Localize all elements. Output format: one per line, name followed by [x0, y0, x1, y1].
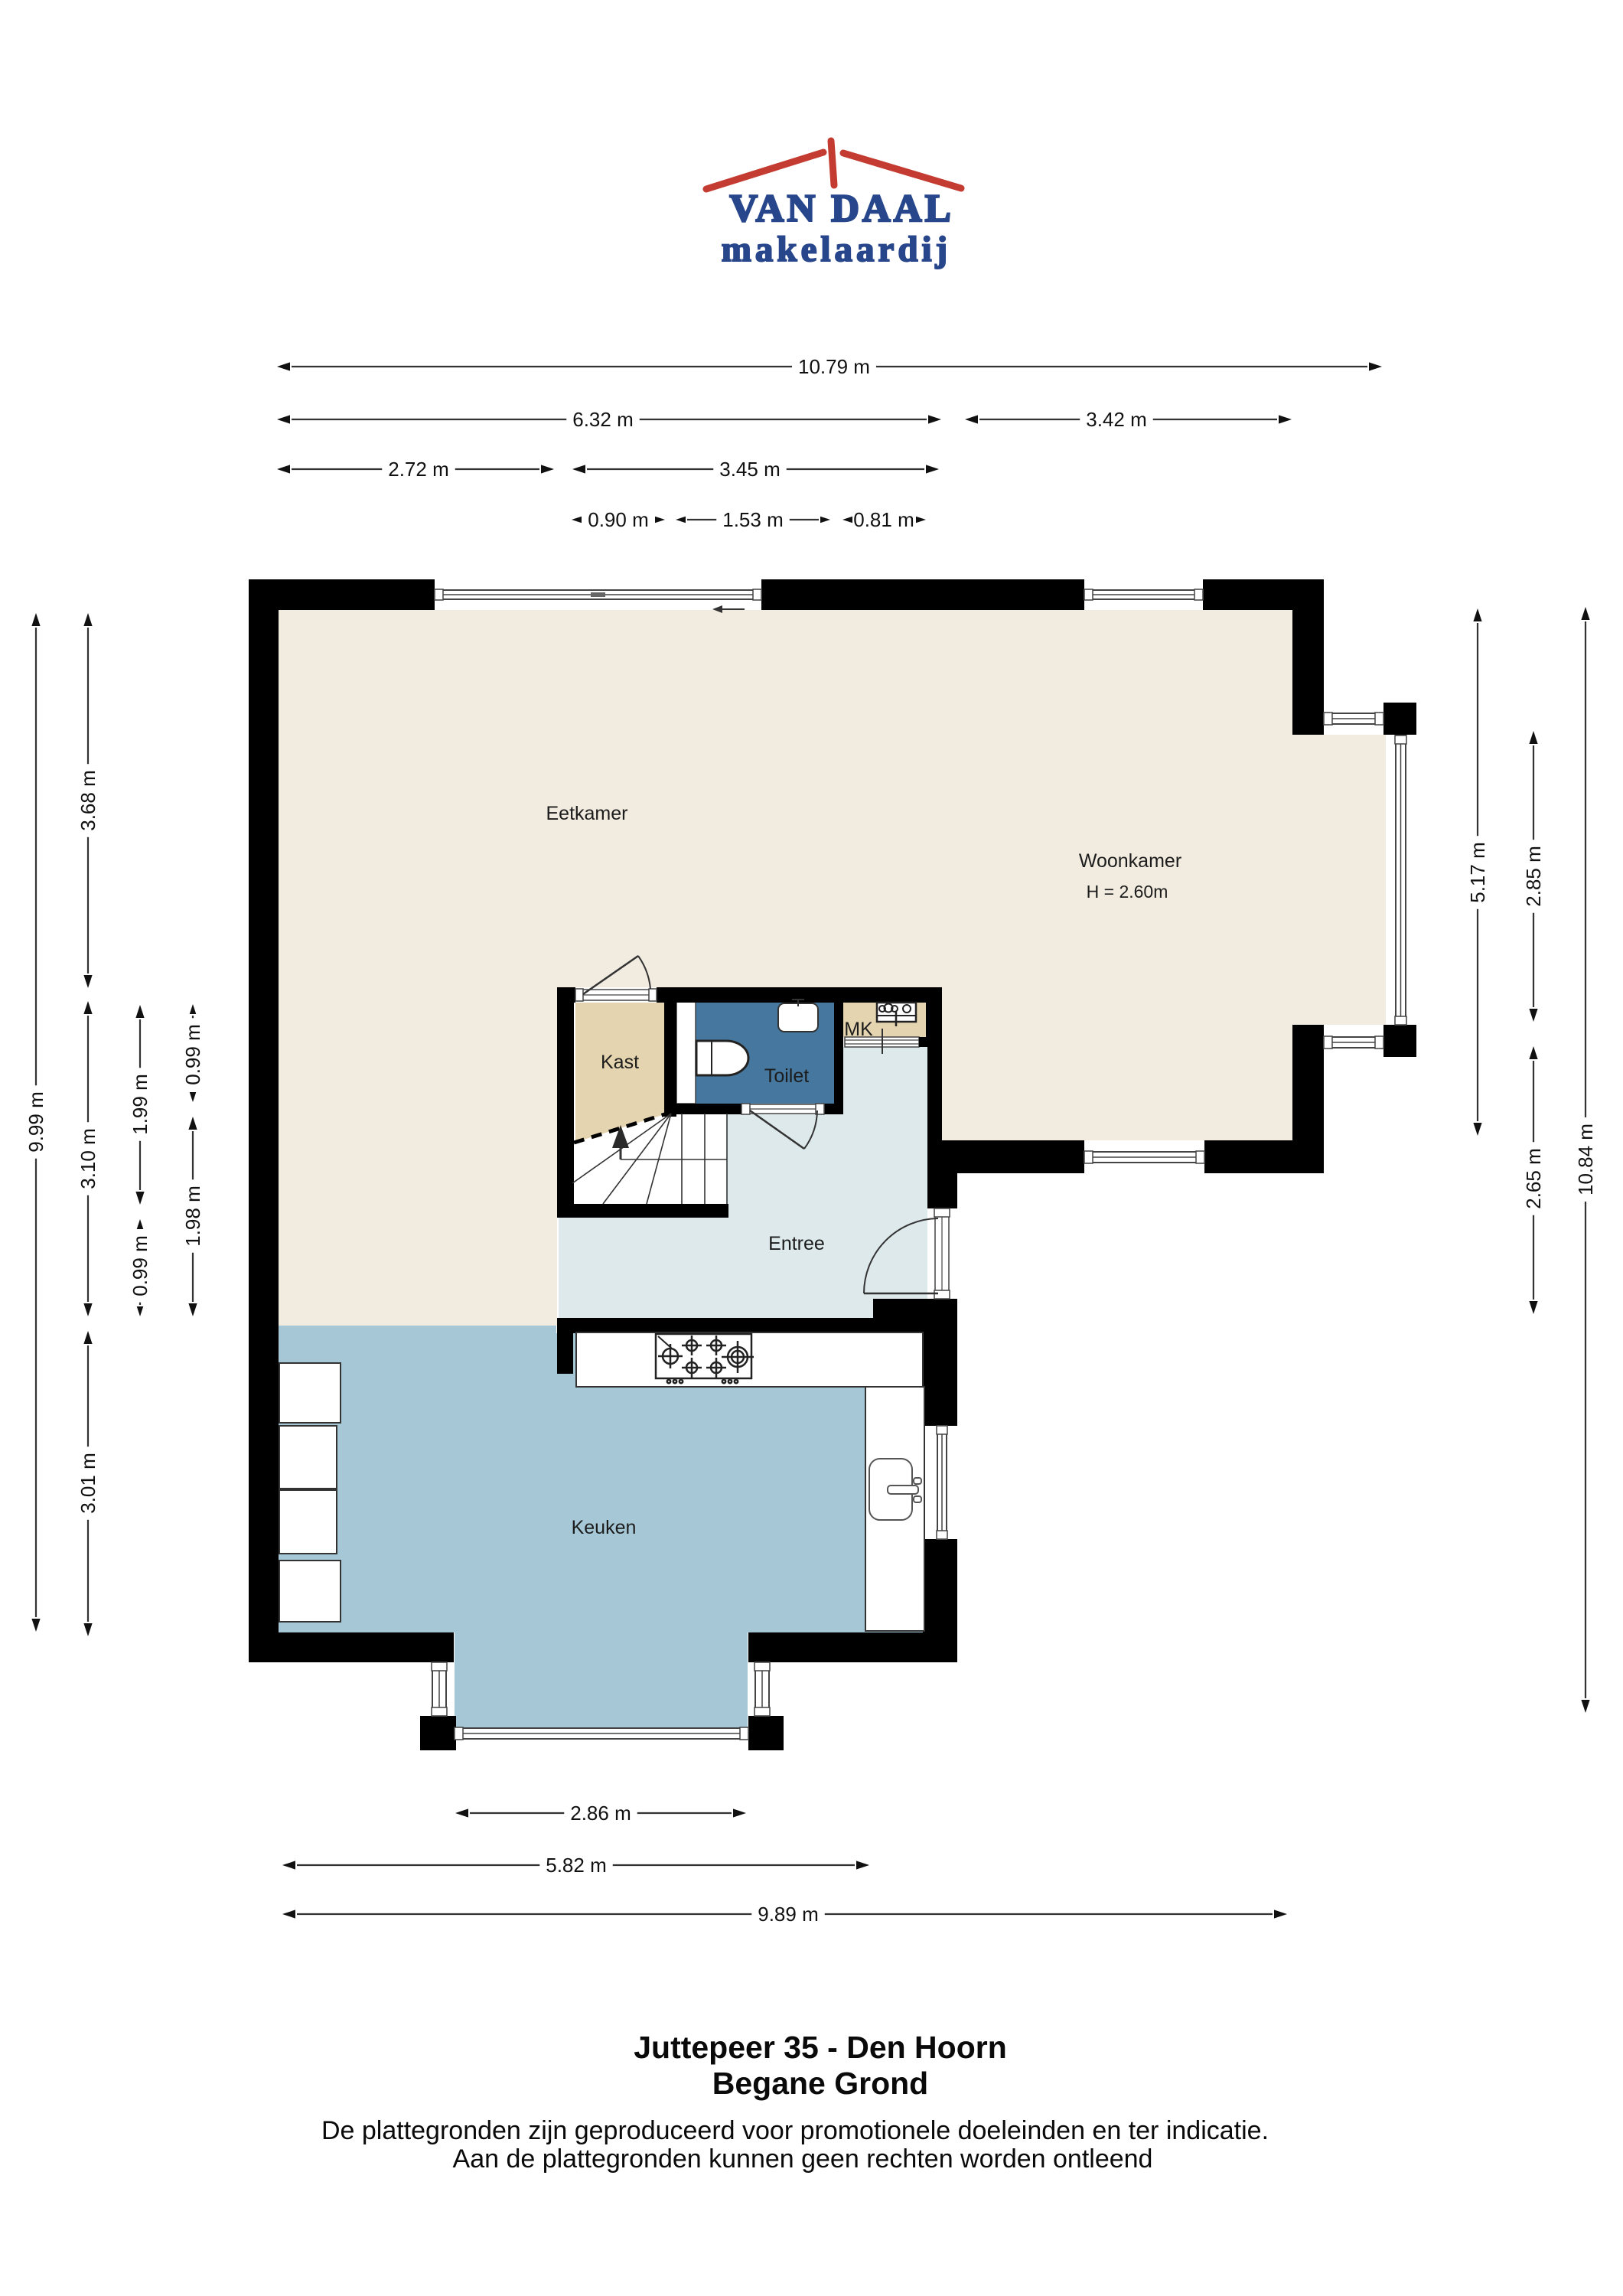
svg-text:Aan de plattegronden kunnen ge: Aan de plattegronden kunnen geen rechten… [453, 2144, 1153, 2174]
svg-text:9.99 m: 9.99 m [24, 1091, 47, 1153]
svg-text:1.53 m: 1.53 m [722, 508, 784, 531]
svg-text:VAN DAAL: VAN DAAL [729, 188, 953, 230]
svg-text:3.45 m: 3.45 m [719, 458, 781, 481]
svg-text:0.90 m: 0.90 m [588, 508, 649, 531]
svg-text:2.72 m: 2.72 m [388, 458, 449, 481]
svg-text:H = 2.60m: H = 2.60m [1087, 882, 1168, 902]
svg-text:3.10 m: 3.10 m [77, 1128, 99, 1189]
svg-text:6.32 m: 6.32 m [572, 408, 634, 431]
svg-text:5.82 m: 5.82 m [546, 1854, 607, 1877]
svg-text:Kast: Kast [601, 1052, 639, 1073]
svg-text:5.17 m: 5.17 m [1466, 842, 1489, 903]
svg-text:1.99 m: 1.99 m [129, 1074, 152, 1135]
svg-text:10.79 m: 10.79 m [798, 355, 870, 378]
svg-text:2.65 m: 2.65 m [1522, 1148, 1545, 1209]
svg-text:2.85 m: 2.85 m [1522, 846, 1545, 907]
svg-text:3.42 m: 3.42 m [1086, 408, 1147, 431]
svg-text:1.98 m: 1.98 m [181, 1186, 204, 1247]
svg-text:10.84 m: 10.84 m [1574, 1124, 1597, 1195]
svg-text:makelaardij: makelaardij [722, 230, 951, 269]
svg-text:0.99 m: 0.99 m [129, 1235, 152, 1296]
svg-text:3.01 m: 3.01 m [77, 1453, 99, 1514]
svg-text:Toilet: Toilet [764, 1065, 809, 1087]
svg-text:Juttepeer 35 - Den Hoorn: Juttepeer 35 - Den Hoorn [634, 2030, 1007, 2065]
svg-text:Woonkamer: Woonkamer [1079, 850, 1181, 872]
svg-text:MK: MK [844, 1019, 873, 1040]
svg-text:2.86 m: 2.86 m [570, 1802, 631, 1825]
svg-text:9.89 m: 9.89 m [758, 1903, 819, 1926]
svg-text:0.99 m: 0.99 m [181, 1024, 204, 1085]
svg-text:0.81 m: 0.81 m [853, 508, 914, 531]
svg-text:De plattegronden zijn geproduc: De plattegronden zijn geproduceerd voor … [321, 2116, 1269, 2145]
svg-text:Eetkamer: Eetkamer [546, 803, 628, 824]
svg-text:3.68 m: 3.68 m [77, 770, 99, 831]
svg-text:Entree: Entree [768, 1233, 825, 1254]
svg-text:Begane Grond: Begane Grond [712, 2066, 928, 2101]
svg-text:Keuken: Keuken [572, 1517, 637, 1538]
